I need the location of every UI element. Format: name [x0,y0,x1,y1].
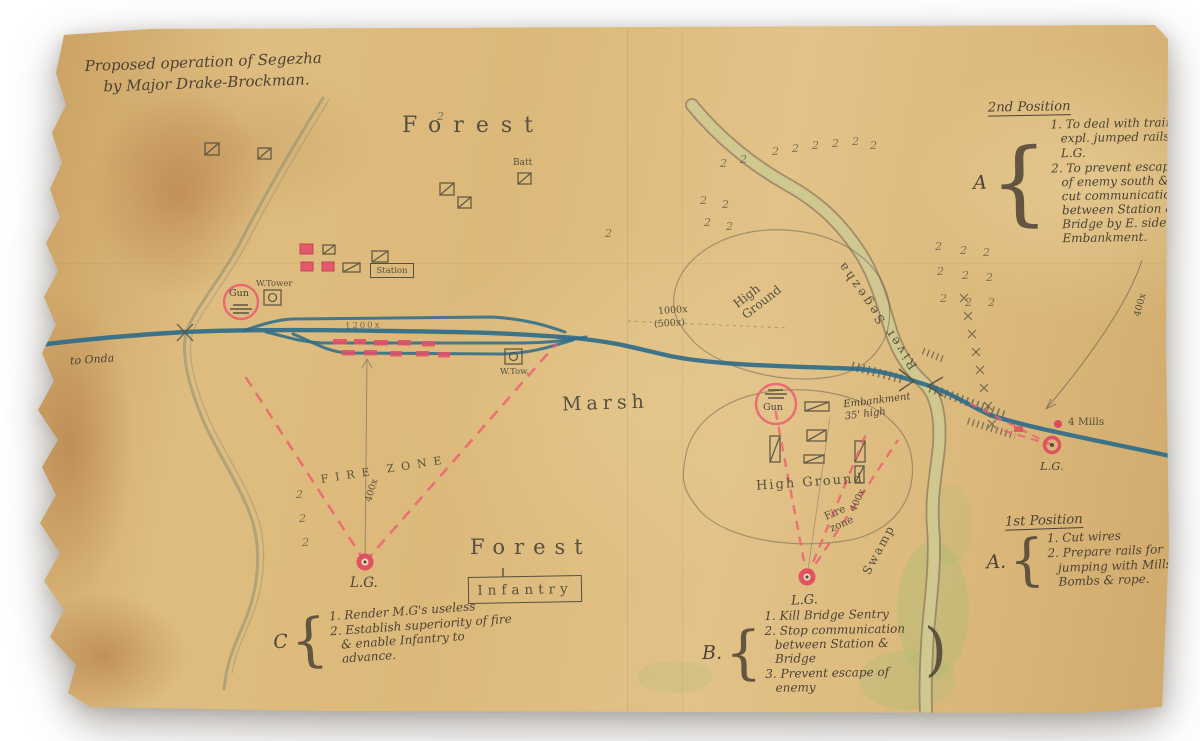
label-w-tower: W.Tower [256,279,292,289]
tree-symbol: 2 [771,145,779,158]
tree-symbol: 2 [934,240,942,253]
four-mills-dot [1054,420,1062,428]
label-lg-mid: L.G. [791,592,819,608]
note-brace: { [289,615,329,664]
note-letter: A [973,172,987,194]
note-items: 1. Cut wires 2. Prepare rails for jumpin… [1047,527,1183,590]
note-letter: B. [702,642,722,665]
tree-symbol: 2 [851,135,859,148]
note-item: 1. Kill Bridge Sentry [764,606,921,623]
buildings-red [300,244,334,271]
label-lg-right: L.G. [1040,459,1064,473]
tree-symbol: 2 [719,157,727,170]
label-station: Station [370,263,414,278]
lewis-gun-right [1045,438,1060,453]
label-forest-top: Forest [402,113,545,138]
tree-symbol: 2 [295,488,303,501]
note-items: 1. Kill Bridge Sentry 2. Stop communicat… [764,606,922,696]
note-item: 2. To prevent escape of enemy south & cu… [1051,159,1186,246]
tree-symbol: 2 [869,139,877,152]
tree-symbol: 2 [982,246,990,259]
label-lg-left: L.G. [350,575,378,591]
tree-symbol: 2 [739,153,747,166]
lewis-gun-left [357,554,374,571]
note-item: 2. Prepare rails for jumping with Mills … [1047,542,1182,589]
note-letter: C [273,630,289,653]
tree-symbol: 2 [939,292,947,305]
label-gun-left: Gun [229,288,249,299]
lewis-gun-mid [799,569,816,586]
tree-symbol: 2 [703,216,711,229]
note-brace: { [1008,538,1045,584]
buildings-hatched [205,143,865,483]
note-second-position: 2nd Position A { 1. To deal with train, … [972,97,1187,247]
tree-symbol: 2 [961,269,969,282]
note-letter: A. [986,551,1007,574]
station-text: Station [376,266,407,276]
note-heading: 2nd Position [988,99,1071,117]
label-batt: Batt [513,158,532,168]
tree-symbol: 2 [985,271,993,284]
label-four-mills: 4 Mills [1068,416,1104,428]
tree-symbol: 2 [987,296,995,309]
note-brace: { [989,145,1049,220]
note-item: 2. Stop communication between Station & … [764,621,921,666]
note-brace-close: ) [924,626,947,673]
tree-symbol: 2 [721,198,729,211]
note-b-tasks: B. { 1. Kill Bridge Sentry 2. Stop commu… [701,606,947,697]
note-items: 1. To deal with train, expl. jumped rail… [1050,116,1186,247]
fire-zone-left-range [362,359,372,562]
red-marker [1014,426,1023,432]
label-w-tow: W.Tow. [500,367,529,377]
paper-wrap: 2 2 2 2 2 2 2 2 2 2 2 2 2 2 2 2 2 2 2 2 … [30,25,1170,715]
label-dist-500: (500x) [654,317,686,330]
label-marsh: Marsh [562,390,650,415]
map-title: Proposed operation of Segezha by Major D… [84,48,323,98]
tree-symbol: 2 [959,244,967,257]
railway [30,317,1170,456]
tree-symbol: 2 [936,265,944,278]
label-forest-bottom: Forest [470,535,592,559]
tree-symbol: 2 [725,220,733,233]
range-arrow [1046,260,1142,409]
tree-symbol: 2 [964,296,972,309]
tree-symbol: 2 [811,139,819,152]
range-line [628,321,788,328]
tree-symbol: 2 [301,536,309,549]
note-item: 3. Prevent escape of enemy [765,664,922,695]
scanned-map-page: 2 2 2 2 2 2 2 2 2 2 2 2 2 2 2 2 2 2 2 2 … [0,0,1200,741]
tree-symbol: 2 [298,512,306,525]
infantry-text: Infantry [477,581,573,599]
label-dist-1000: 1000x [658,304,688,317]
tree-symbol: 2 [831,137,839,150]
tree-symbol: 2 [604,227,612,240]
tree-symbol: 2 [791,142,799,155]
note-brace: { [725,629,763,676]
map-paper: 2 2 2 2 2 2 2 2 2 2 2 2 2 2 2 2 2 2 2 2 … [30,25,1170,715]
tree-symbol: 2 [699,194,707,207]
label-gun-right: Gun [763,402,783,413]
note-first-position: 1st Position A. { 1. Cut wires 2. Prepar… [985,509,1183,592]
label-siding-dist: 1200x [345,320,382,331]
note-item: 1. To deal with train, expl. jumped rail… [1050,116,1184,160]
